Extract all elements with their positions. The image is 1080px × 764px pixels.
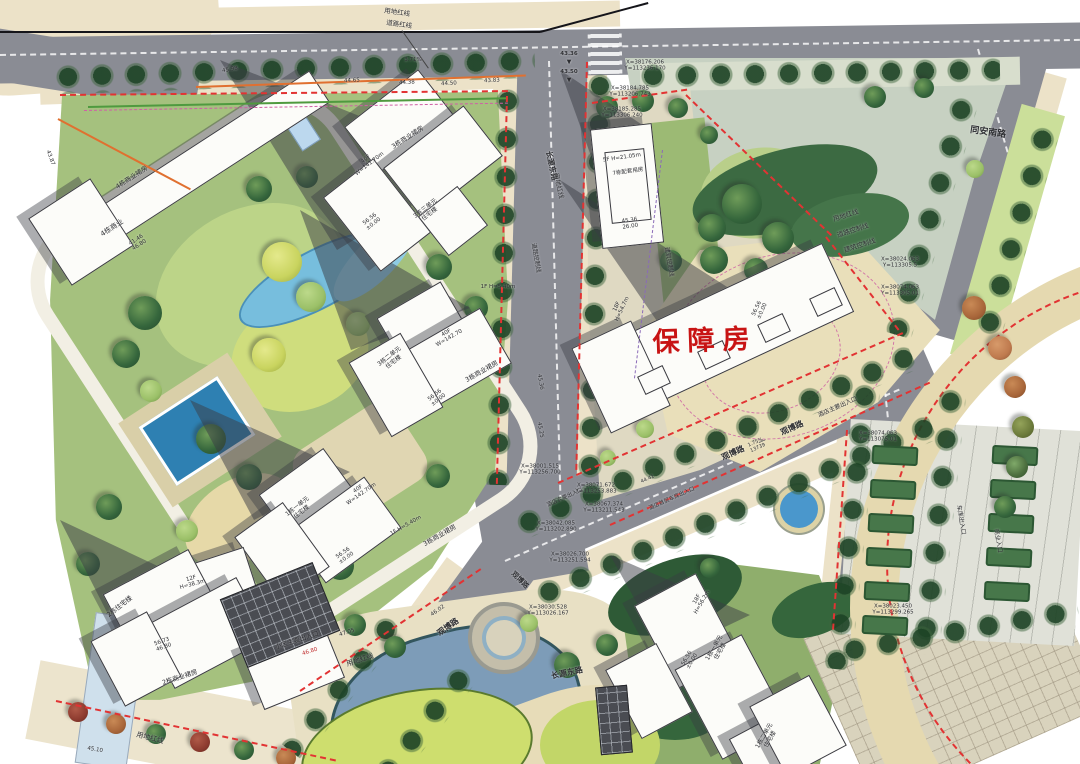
- buildings-label: 3栋商业裙房: [464, 360, 499, 385]
- elevations-label: 43.36: [560, 51, 577, 57]
- buildings-label: 40F W=141.70m: [350, 146, 385, 177]
- buildings-label: 56.56 ±0.00: [334, 546, 355, 566]
- affordable-housing-label: 保障房: [652, 317, 758, 360]
- roads-label: 同安南路: [969, 125, 1006, 140]
- coordinates-label: X=38184.785 Y=113206.743: [609, 86, 650, 99]
- buildings-label: 56.56 ±0.00: [680, 650, 699, 671]
- labels-layer: 保障房 长源东路长源东路观博路观博路—观博路观博路同安南路用地红线道路红线用地红…: [0, 0, 1080, 764]
- coordinates-label: X=38023.450 Y=113299.265: [872, 604, 913, 617]
- coordinates-label: X=38024.063 Y=113305.5: [881, 257, 919, 270]
- boundaries-label: 用地红线: [135, 731, 164, 746]
- buildings-label: 3栋商业裙房: [422, 524, 457, 549]
- elevations-label: 43.50: [560, 69, 577, 75]
- elevations-label: 43.83: [484, 77, 500, 84]
- buildings-label: 2栋商业裙房: [161, 669, 198, 687]
- buildings-label: 4栋商业: [99, 218, 125, 239]
- elevations-label: 44.41: [640, 474, 655, 485]
- elevations-label: 46.02: [430, 604, 447, 618]
- buildings-label: 7栋配套用房: [612, 167, 644, 178]
- site-plan-canvas: 保障房 长源东路长源东路观博路观博路—观博路观博路同安南路用地红线道路红线用地红…: [0, 0, 1080, 764]
- elevations-label: 47.05: [339, 628, 356, 639]
- boundaries-label: 用地红线: [832, 208, 859, 223]
- boundaries-label: 用地红线: [552, 173, 565, 200]
- elevations-label: 44.38: [399, 79, 415, 86]
- buildings-label: 56.56 ±0.00: [361, 212, 382, 232]
- elevations-label: 45.10: [87, 746, 104, 755]
- buildings-label: 3栋商业裙房: [391, 125, 426, 151]
- coordinates-label: X=38042.085 Y=113202.890: [535, 521, 576, 534]
- coordinates-label: X=38074.063 Y=113305.01: [881, 285, 919, 298]
- elevations-label: 46.80: [302, 647, 319, 658]
- boundaries-label: 用地红线: [345, 652, 374, 668]
- buildings-label: 12F H=38.3m: [178, 572, 207, 591]
- elevations-label: 3.71%: [404, 57, 421, 63]
- roads-label: 观博路: [779, 419, 805, 437]
- buildings-label: 3栋二单元 住宅楼: [377, 346, 407, 374]
- entrances-label: 酒店首层车库出入口: [648, 486, 696, 512]
- buildings-label: 40F W=142.70: [432, 323, 464, 349]
- buildings-label: 1栋二单元 住宅楼: [755, 723, 781, 754]
- elevations-label: 45.36: [536, 374, 545, 391]
- entrances-label: 商业入口: [992, 529, 1003, 554]
- elevations-label: 44.65: [344, 77, 360, 84]
- elevations-label: 44.50: [441, 80, 457, 87]
- roads-label: 观博路: [510, 570, 531, 591]
- buildings-label: 56.73 46.80: [153, 636, 172, 653]
- coordinates-label: X=38071.672 Y=113253.883: [575, 483, 616, 496]
- buildings-label: 2栋住宅楼: [106, 595, 134, 619]
- entrances-label: 车库出入口: [954, 505, 966, 536]
- boundaries-label: 道路红线: [386, 19, 413, 30]
- coordinates-label: X=38074.063 Y=113075.01: [859, 431, 897, 444]
- buildings-label: 1栋一单元 住宅楼: [705, 635, 731, 666]
- buildings-label: 18F H=54.7m: [609, 293, 632, 322]
- buildings-label: 1F H=5.40m: [389, 515, 422, 538]
- buildings-label: 45.36 26.00: [621, 217, 638, 232]
- elevations-label: 45.25: [536, 422, 545, 439]
- buildings-label: 18F H=56.2m: [688, 586, 712, 615]
- buildings-label: 56.56 ±0.00: [426, 388, 447, 408]
- boundaries-label: 建筑控制线: [843, 237, 876, 254]
- boundaries-label: 道路控制线: [529, 243, 541, 274]
- coordinates-label: X=38067.374 Y=113211.543: [583, 502, 624, 515]
- boundaries-label: 道路控制线: [836, 222, 869, 239]
- buildings-label: 4栋商业裙房: [115, 165, 150, 191]
- buildings-label: 41.46 46.80: [128, 233, 148, 252]
- elevations-label: ▼: [567, 78, 572, 85]
- buildings-label: 40F W=142.70m: [342, 477, 378, 507]
- boundaries-label: 建筑控制线: [662, 247, 674, 278]
- coordinates-label: X=38001.515 Y=113256.700: [519, 464, 560, 477]
- coordinates-label: X=38030.528 Y=113026.167: [527, 605, 568, 618]
- coordinates-label: X=38176.206 Y=113236.170: [624, 60, 665, 73]
- elevations-label: ▼: [567, 60, 572, 67]
- elevations-label: 43.87: [44, 150, 55, 167]
- buildings-label: 5F H=21.05m: [603, 152, 642, 164]
- elevations-label: 45.98: [222, 66, 239, 75]
- entrances-label: 酒店主要出入口: [817, 396, 858, 419]
- boundaries-label: 用地红线: [384, 7, 411, 18]
- buildings-label: 1栋一单元 住宅楼: [285, 496, 315, 524]
- buildings-label: 1F H=5.40m: [481, 284, 516, 290]
- roads-label: 观博路: [720, 444, 746, 462]
- coordinates-label: X=38185.285 Y=113306.240: [601, 107, 642, 120]
- roads-label: 观博路: [436, 616, 461, 637]
- buildings-label: 3栋三单元 住宅楼: [413, 198, 443, 226]
- roads-label: 长源东路: [550, 665, 583, 681]
- coordinates-label: X=38026.700 Y=113251.594: [549, 552, 590, 565]
